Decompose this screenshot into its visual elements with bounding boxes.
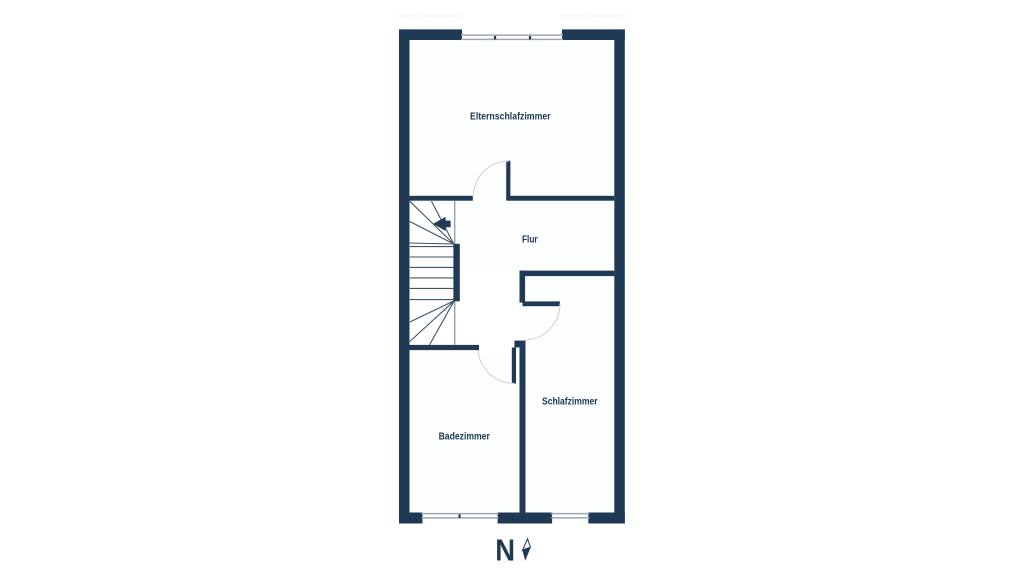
svg-text:Badezimmer: Badezimmer — [439, 431, 490, 442]
svg-text:Schlafzimmer: Schlafzimmer — [542, 396, 598, 407]
svg-text:Flur: Flur — [522, 235, 538, 246]
svg-text:N: N — [495, 532, 515, 567]
svg-text:Elternschlafzimmer: Elternschlafzimmer — [470, 112, 551, 123]
